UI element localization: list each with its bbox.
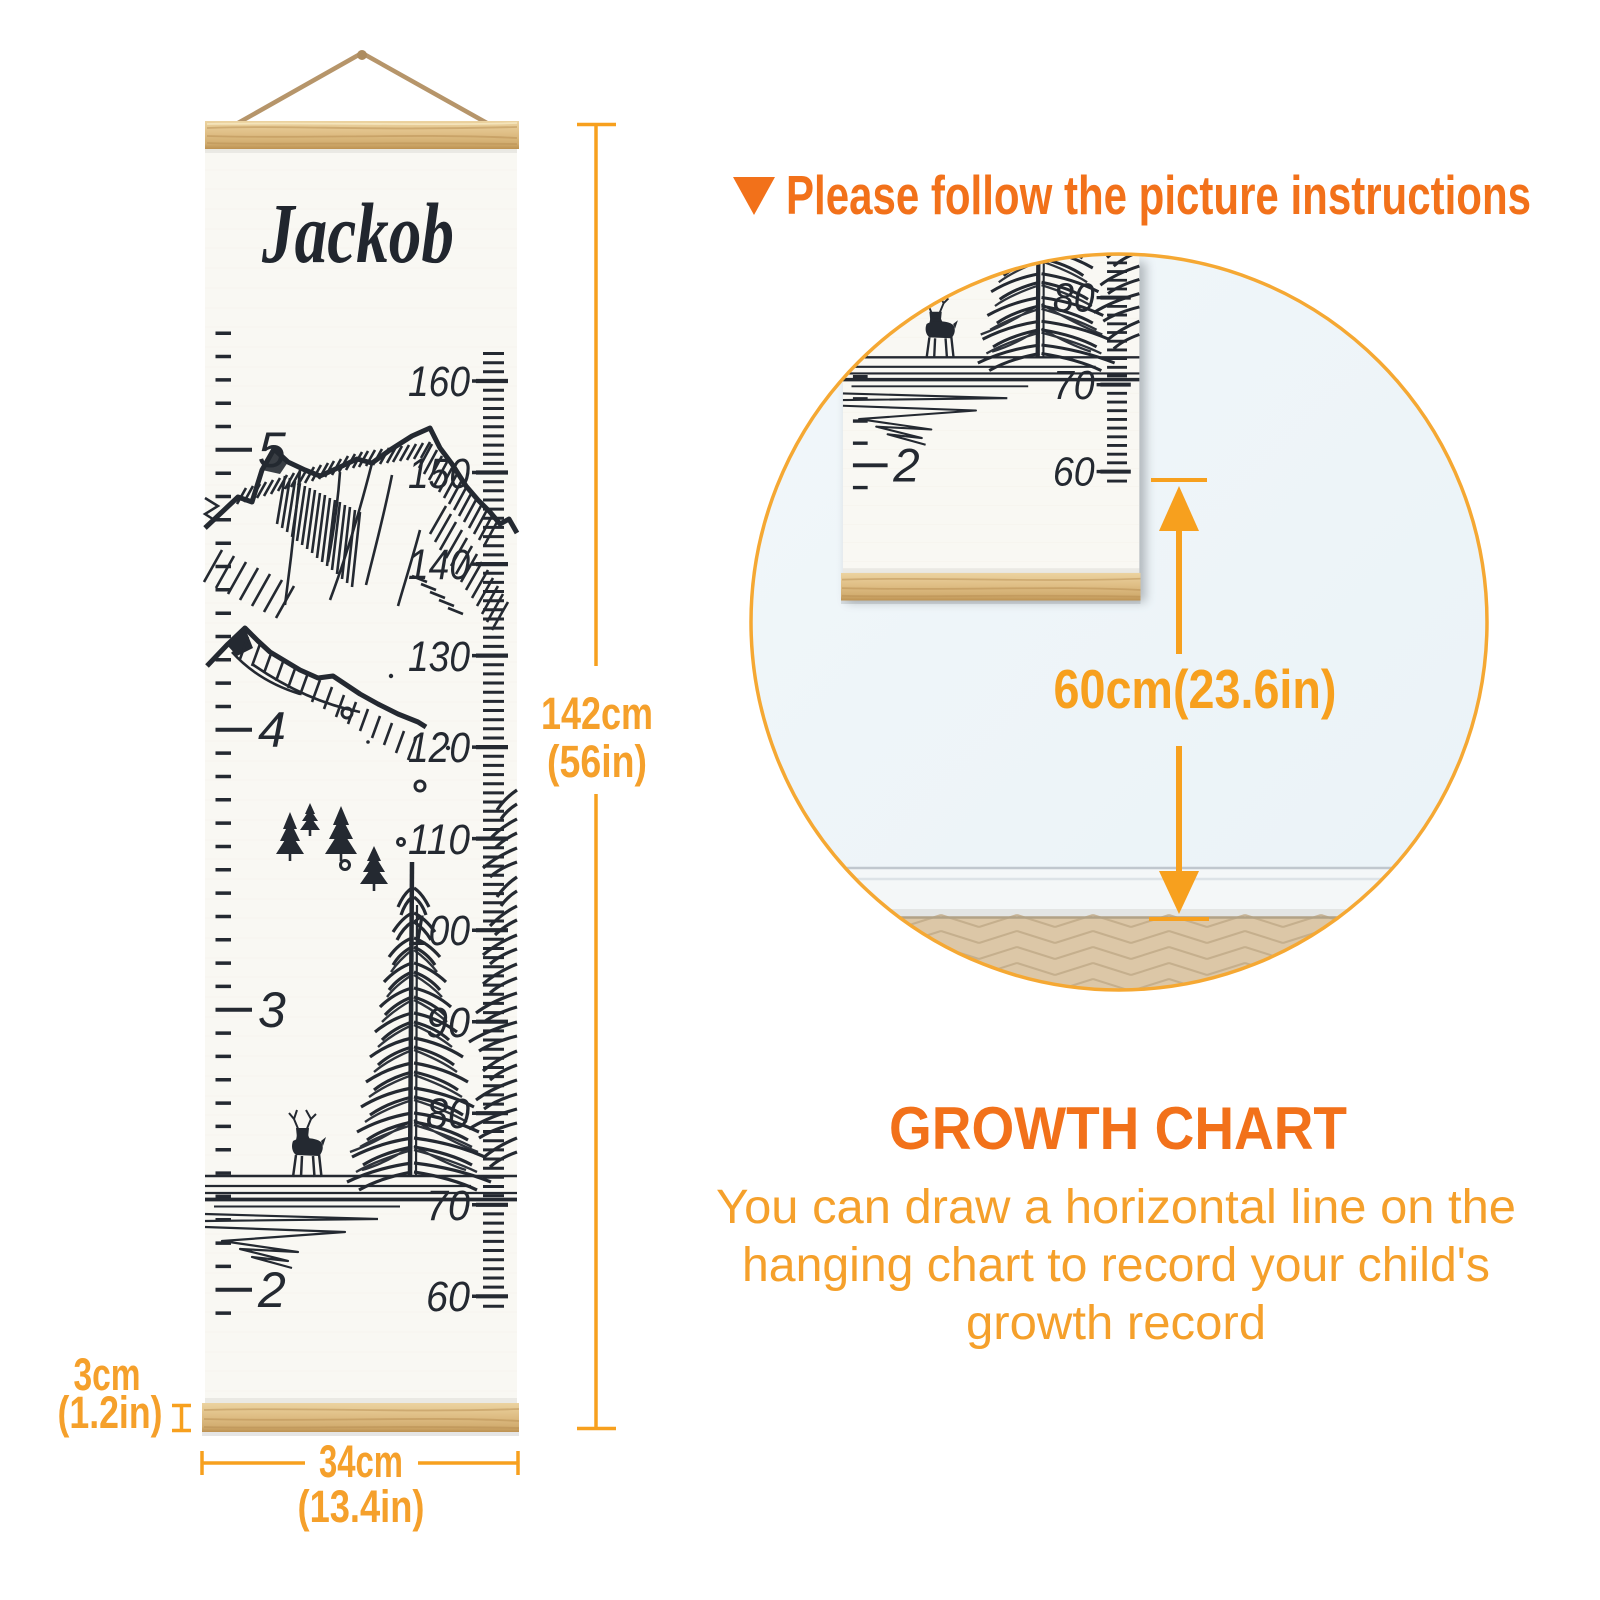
svg-text:(13.4in): (13.4in) xyxy=(298,1481,425,1532)
svg-text:70: 70 xyxy=(426,1182,470,1230)
svg-text:3: 3 xyxy=(258,982,286,1038)
svg-text:hanging chart to record your c: hanging chart to record your child's xyxy=(742,1239,1490,1292)
svg-text:GROWTH CHART: GROWTH CHART xyxy=(889,1095,1347,1162)
svg-text:Jackob: Jackob xyxy=(261,185,454,281)
svg-text:2: 2 xyxy=(257,1262,286,1318)
svg-text:(1.2in): (1.2in) xyxy=(58,1387,163,1438)
svg-text:60: 60 xyxy=(426,1273,470,1321)
svg-text:130: 130 xyxy=(408,633,470,681)
svg-text:142cm: 142cm xyxy=(541,688,653,739)
svg-text:You can draw a horizontal line: You can draw a horizontal line on the xyxy=(716,1181,1516,1234)
svg-text:34cm: 34cm xyxy=(319,1436,403,1487)
svg-text:60cm(23.6in): 60cm(23.6in) xyxy=(1054,658,1337,720)
svg-text:110: 110 xyxy=(408,816,470,864)
svg-text:(56in): (56in) xyxy=(547,736,647,787)
svg-text:growth record: growth record xyxy=(966,1297,1266,1350)
svg-text:120: 120 xyxy=(408,724,470,772)
svg-text:160: 160 xyxy=(408,358,470,406)
svg-text:Please follow the picture inst: Please follow the picture instructions xyxy=(786,164,1531,226)
svg-text:4: 4 xyxy=(258,702,286,758)
